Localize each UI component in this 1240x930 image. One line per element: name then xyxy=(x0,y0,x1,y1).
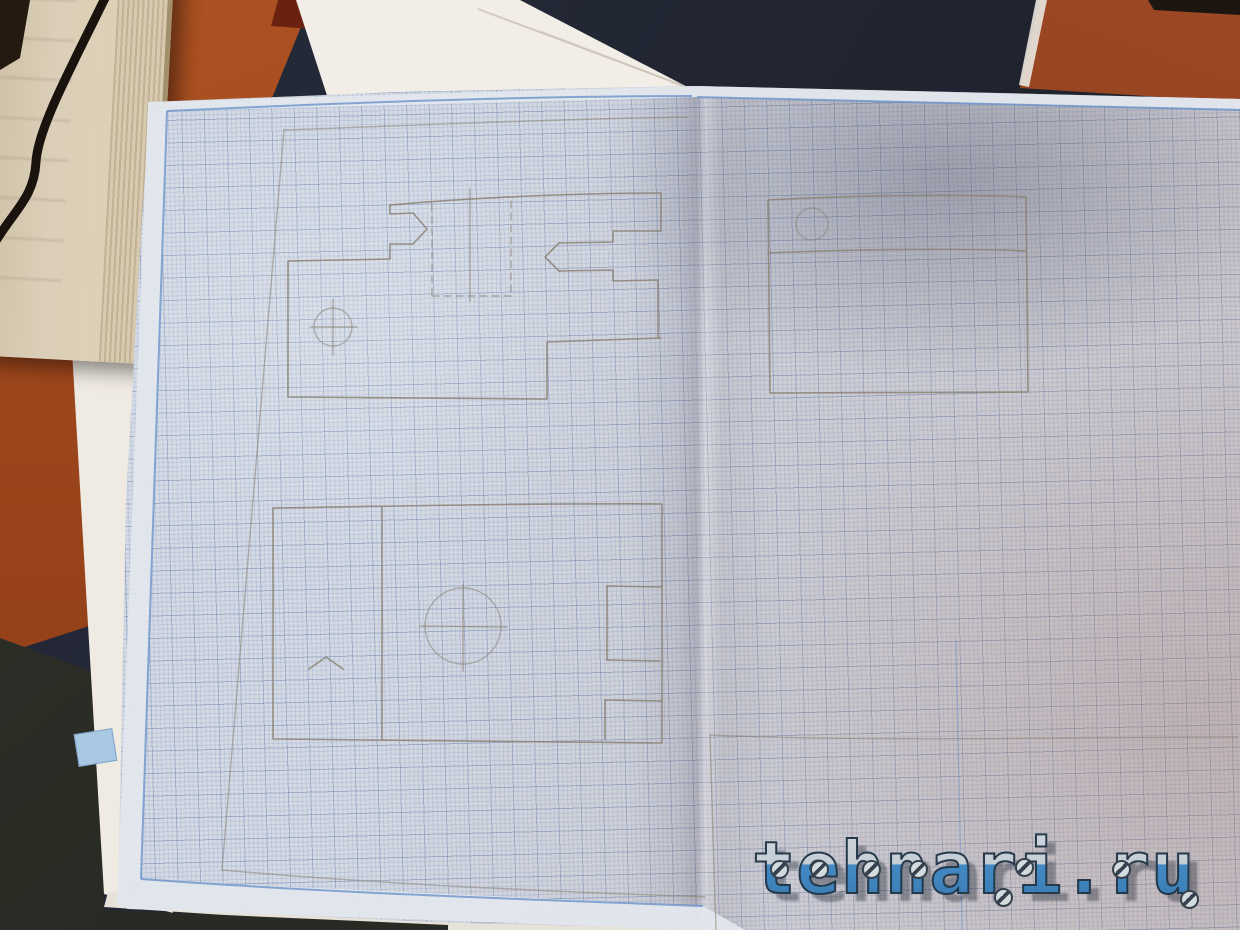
view1-right-top xyxy=(559,193,661,243)
pencil-frame-right-page-vertical xyxy=(710,735,716,930)
screw-icon xyxy=(810,860,829,879)
screw-icon xyxy=(994,888,1013,907)
view1-outline xyxy=(288,205,661,399)
screw-icon xyxy=(1112,860,1131,879)
view1-right-bottom xyxy=(559,270,658,338)
pencil-drawing-layer xyxy=(0,0,1240,930)
view3-notch-lower xyxy=(605,700,662,701)
pencil-frame-top xyxy=(284,117,688,130)
screw-icon xyxy=(862,860,881,879)
view1-chevron xyxy=(545,243,559,271)
view2-divider xyxy=(768,249,1026,253)
screw-icon xyxy=(770,860,789,879)
paper-margin-top xyxy=(148,86,1240,111)
screw-icon xyxy=(1180,890,1199,909)
view3-notch-top xyxy=(607,586,662,587)
screw-icon xyxy=(1015,858,1034,877)
view3-peak xyxy=(309,657,343,669)
view2-hole-circle xyxy=(796,208,828,240)
paper-margin-left xyxy=(117,102,168,906)
pencil-frame-left xyxy=(222,130,284,870)
view3-outline xyxy=(273,504,662,743)
photo-scene: tehnari.ru tehnari.ru xyxy=(0,0,1240,930)
view3-notch-middle xyxy=(607,660,660,661)
screw-icon xyxy=(909,860,928,879)
view1-top-edge xyxy=(390,193,661,205)
watermark: tehnari.ru tehnari.ru xyxy=(752,826,1240,926)
view2-outline xyxy=(768,195,1028,393)
pencil-frame-right-page-horizontal xyxy=(710,735,1238,739)
